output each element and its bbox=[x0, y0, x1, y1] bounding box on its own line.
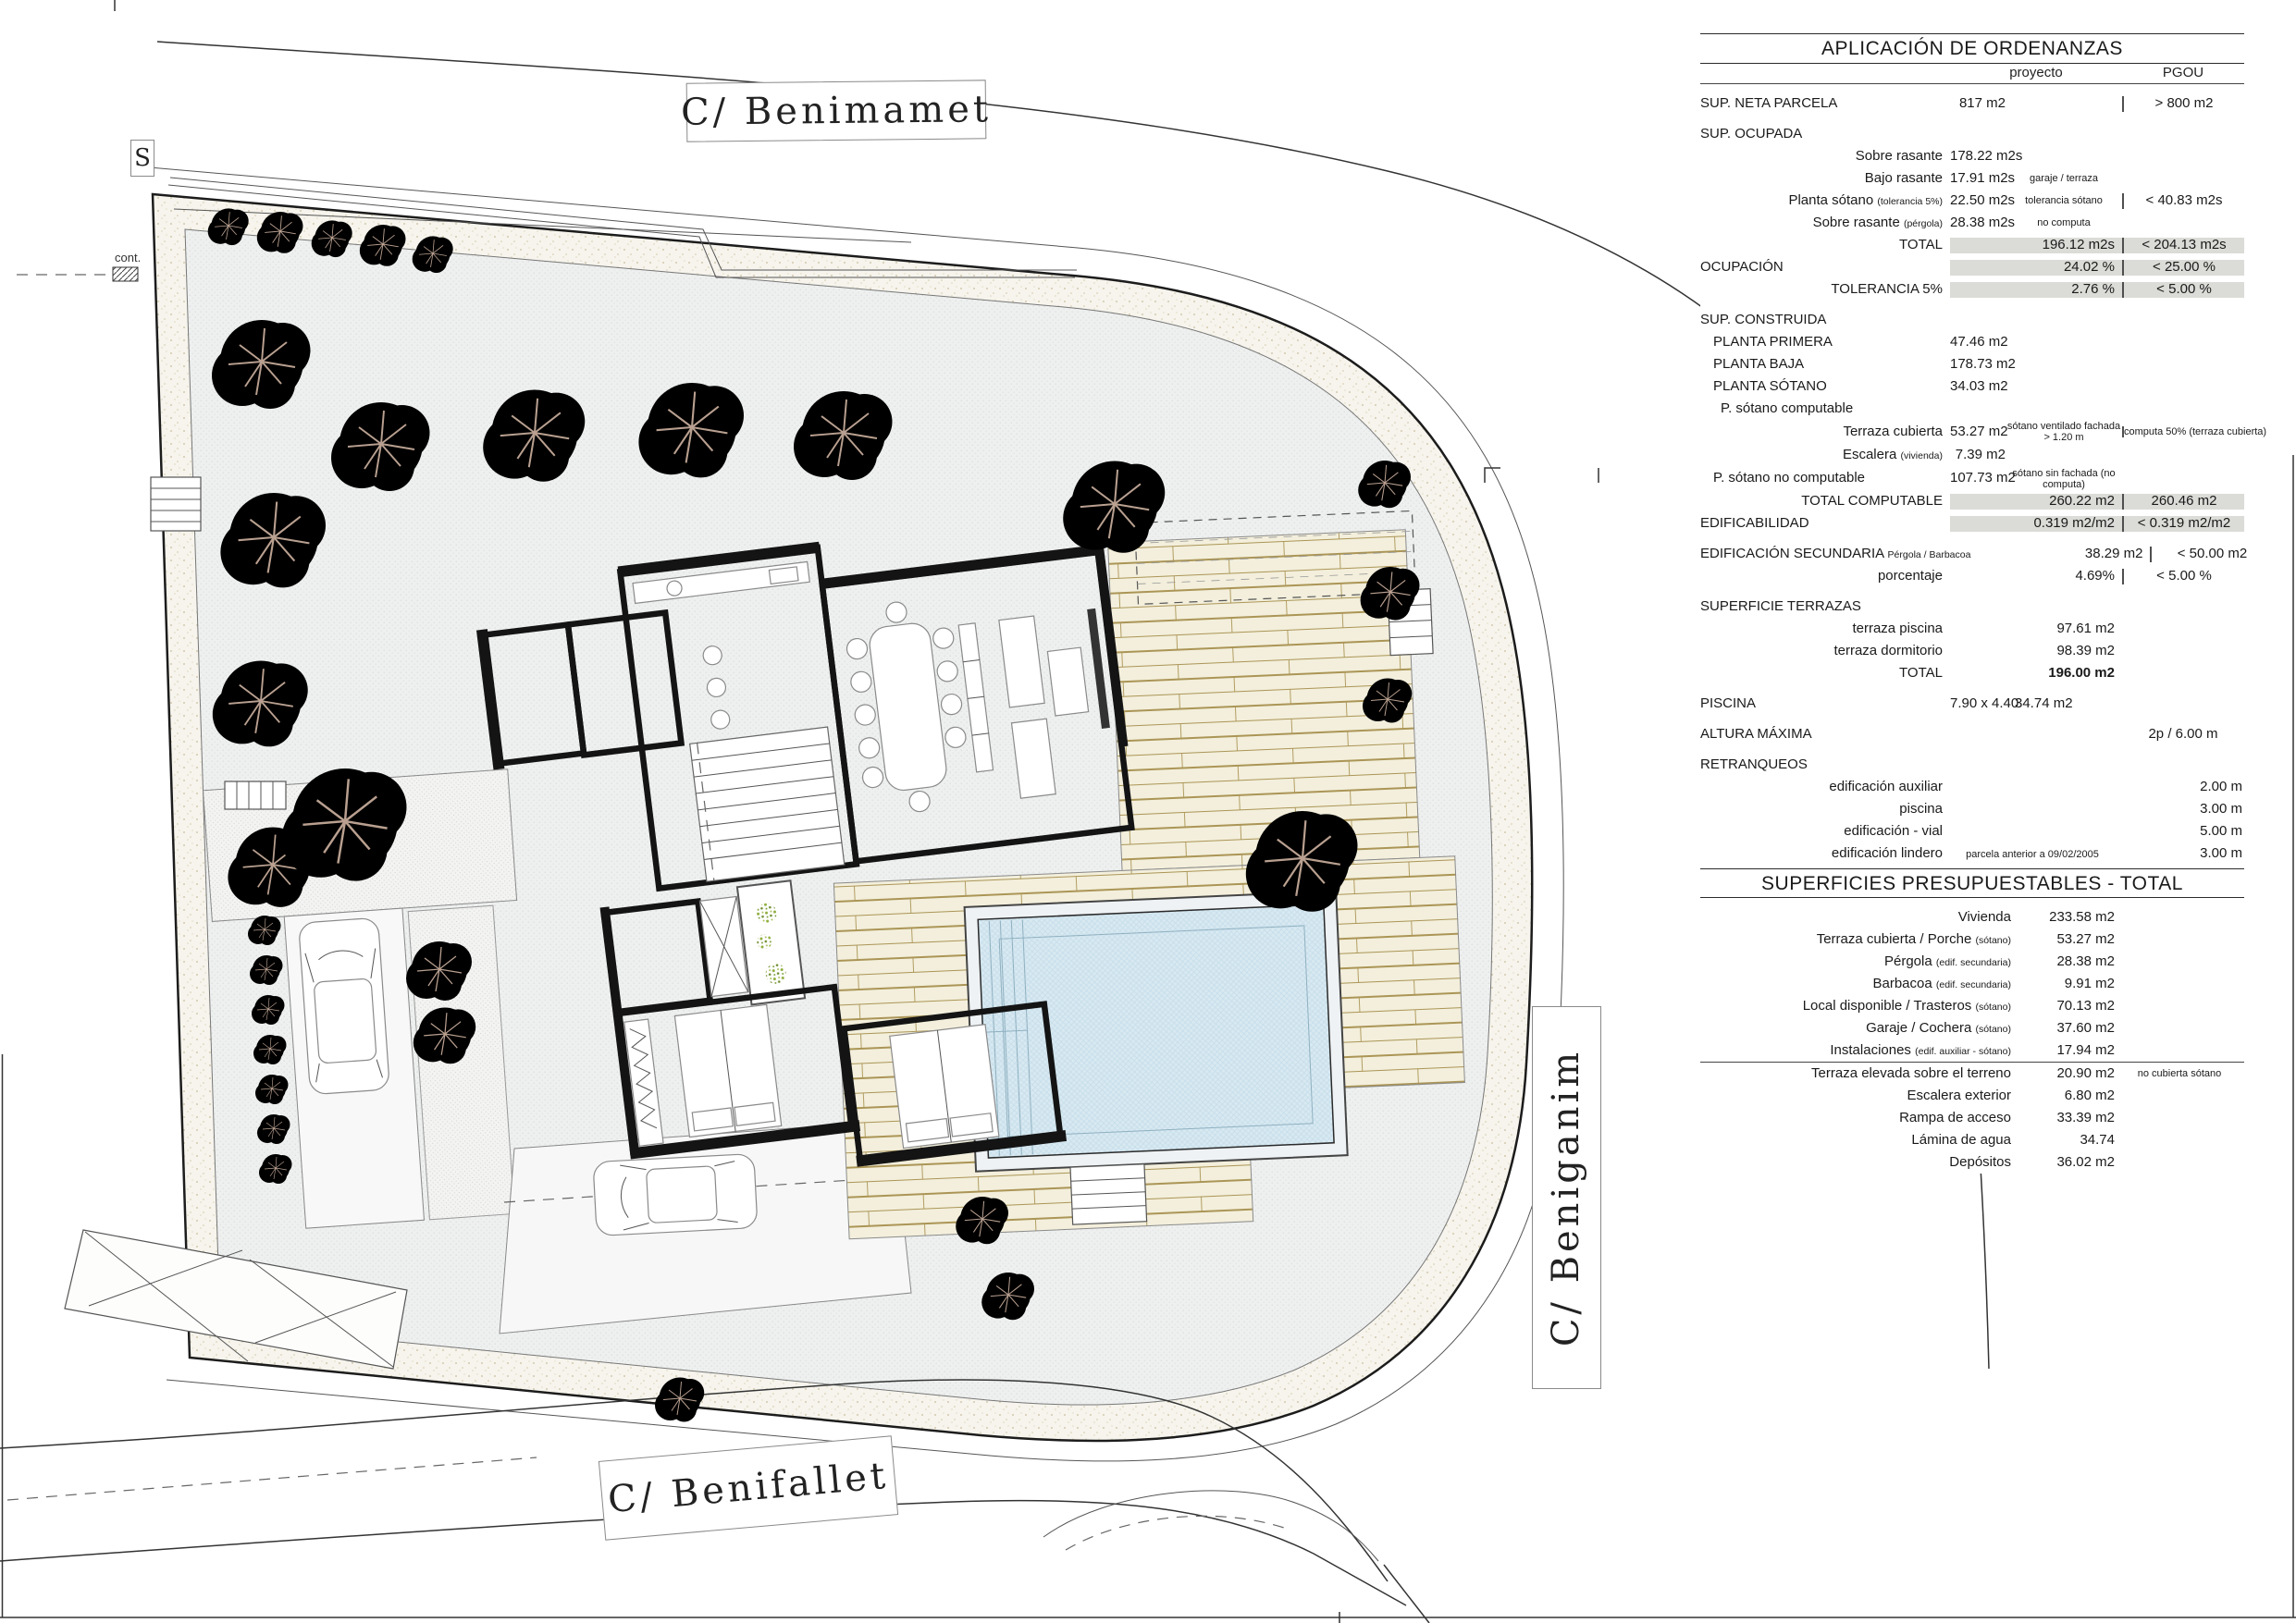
row-terraza-piscina: terraza piscina97.61 m2 bbox=[1700, 619, 2244, 641]
row-local-trasteros: Local disponible / Trasteros (sótano)70.… bbox=[1700, 995, 2244, 1017]
row-escalera-exterior: Escalera exterior6.80 m2 bbox=[1700, 1085, 2244, 1107]
car-driveway bbox=[299, 917, 390, 1095]
ordenanzas-table: APLICACIÓN DE ORDENANZAS proyectoPGOU SU… bbox=[1700, 33, 2244, 1174]
row-pergola: Pérgola (edif. secundaria)28.38 m2 bbox=[1700, 951, 2244, 973]
row-terraza-dormitorio: terraza dormitorio98.39 m2 bbox=[1700, 641, 2244, 663]
row-tolerancia: TOLERANCIA 5%2.76 %< 5.00 % bbox=[1700, 278, 2244, 301]
row-planta-baja: PLANTA BAJA178.73 m2 bbox=[1700, 353, 2244, 375]
cont-label: cont. bbox=[115, 251, 141, 264]
street-label-beniganim-text: C/ Beniganim bbox=[1546, 1049, 1588, 1346]
row-sobre-rasante: Sobre rasante178.22 m2s bbox=[1700, 145, 2244, 167]
street-label-beniganim: C/ Beniganim bbox=[1532, 1006, 1601, 1389]
row-total-ocupada: TOTAL196.12 m2s< 204.13 m2s bbox=[1700, 234, 2244, 256]
road-centerline bbox=[7, 1457, 537, 1500]
row-sotano-no-computable: P. sótano no computable107.73 m2sótano s… bbox=[1700, 467, 2244, 491]
deck-stair bbox=[1070, 1164, 1147, 1224]
row-planta-sotano-tol: Planta sótano (tolerancia 5%)22.50 m2sto… bbox=[1700, 190, 2244, 212]
row-edificacion-secundaria: EDIFICACIÓN SECUNDARIA Pérgola / Barbaco… bbox=[1700, 544, 2244, 566]
row-depositos: Depósitos36.02 m2 bbox=[1700, 1151, 2244, 1174]
table-header: proyectoPGOU bbox=[1700, 64, 2244, 84]
row-superficie-terrazas: SUPERFICIE TERRAZAS bbox=[1700, 596, 2244, 619]
row-edificacion-lindero: edificación linderoparcela anterior a 09… bbox=[1700, 843, 2244, 866]
row-edificacion-vial: edificación - vial5.00 m bbox=[1700, 821, 2244, 843]
row-terraza-porche: Terraza cubierta / Porche (sótano)53.27 … bbox=[1700, 928, 2244, 951]
section-hatch-marker bbox=[113, 267, 138, 281]
corner-island-inner bbox=[1066, 1516, 1284, 1550]
row-altura-maxima: ALTURA MÁXIMA2p / 6.00 m bbox=[1700, 724, 2244, 746]
row-instalaciones: Instalaciones (edif. auxiliar - sótano)1… bbox=[1700, 1039, 2244, 1062]
row-planta-primera: PLANTA PRIMERA47.46 m2 bbox=[1700, 331, 2244, 353]
row-sotano-computable: P. sótano computable bbox=[1700, 398, 2244, 420]
row-piscina: PISCINA7.90 x 4.4034.74 m2 bbox=[1700, 694, 2244, 716]
row-edificacion-auxiliar: edificación auxiliar2.00 m bbox=[1700, 777, 2244, 799]
row-sobre-rasante-pergola: Sobre rasante (pérgola)28.38 m2sno compu… bbox=[1700, 212, 2244, 234]
table-title: APLICACIÓN DE ORDENANZAS bbox=[1700, 34, 2244, 63]
pool bbox=[965, 891, 1348, 1171]
row-vivienda: Vivienda233.58 m2 bbox=[1700, 906, 2244, 928]
row-barbacoa: Barbacoa (edif. secundaria)9.91 m2 bbox=[1700, 973, 2244, 995]
bed-2 bbox=[890, 1025, 999, 1149]
row-terraza-elevada: Terraza elevada sobre el terreno20.90 m2… bbox=[1700, 1063, 2244, 1085]
row-ocupacion: OCUPACIÓN24.02 %< 25.00 % bbox=[1700, 256, 2244, 278]
row-retranqueos: RETRANQUEOS bbox=[1700, 755, 2244, 777]
row-garaje: Garaje / Cochera (sótano)37.60 m2 bbox=[1700, 1017, 2244, 1039]
row-construida: SUP. CONSTRUIDA bbox=[1700, 309, 2244, 331]
rule bbox=[1700, 83, 2244, 84]
courtyard-stair bbox=[225, 781, 286, 809]
row-rampa: Rampa de acceso33.39 m2 bbox=[1700, 1107, 2244, 1129]
row-total-computable: TOTAL COMPUTABLE260.22 m2260.46 m2 bbox=[1700, 491, 2244, 513]
table-title-2: SUPERFICIES PRESUPUESTABLES - TOTAL bbox=[1700, 869, 2244, 898]
row-bajo-rasante: Bajo rasante17.91 m2sgaraje / terraza bbox=[1700, 167, 2244, 190]
col-proyecto: proyecto bbox=[1950, 66, 2122, 81]
street-label-benimamet: C/ Benimamet bbox=[686, 80, 987, 141]
row-edificabilidad: EDIFICABILIDAD0.319 m2/m2< 0.319 m2/m2 bbox=[1700, 513, 2244, 535]
car-parking bbox=[593, 1154, 758, 1236]
row-lamina-agua: Lámina de agua34.74 bbox=[1700, 1129, 2244, 1151]
row-escalera: Escalera (vivienda)7.39 m2 bbox=[1700, 445, 2244, 467]
corner-island-outer bbox=[1043, 1491, 1378, 1561]
bed-1 bbox=[674, 1004, 781, 1137]
section-marker-s: S bbox=[130, 140, 154, 177]
row-ocupada: SUP. OCUPADA bbox=[1700, 123, 2244, 145]
col-pgou: PGOU bbox=[2122, 66, 2244, 81]
road-corner-diagonal bbox=[1384, 1565, 1429, 1623]
sheet: { "plan": { "street_top": "C/ Benimamet"… bbox=[0, 0, 2296, 1623]
exterior-stair bbox=[151, 477, 201, 531]
rule bbox=[1700, 897, 2244, 898]
row-retranqueo-piscina: piscina3.00 m bbox=[1700, 799, 2244, 821]
row-neta: SUP. NETA PARCELA817 m2> 800 m2 bbox=[1700, 92, 2244, 115]
row-terrazas-total: TOTAL196.00 m2 bbox=[1700, 663, 2244, 685]
row-planta-sotano: PLANTA SÓTANO34.03 m2 bbox=[1700, 375, 2244, 398]
main-stair bbox=[690, 727, 845, 881]
row-porcentaje: porcentaje4.69%< 5.00 % bbox=[1700, 566, 2244, 588]
row-terraza-cubierta: Terraza cubierta53.27 m2sótano ventilado… bbox=[1700, 420, 2244, 444]
